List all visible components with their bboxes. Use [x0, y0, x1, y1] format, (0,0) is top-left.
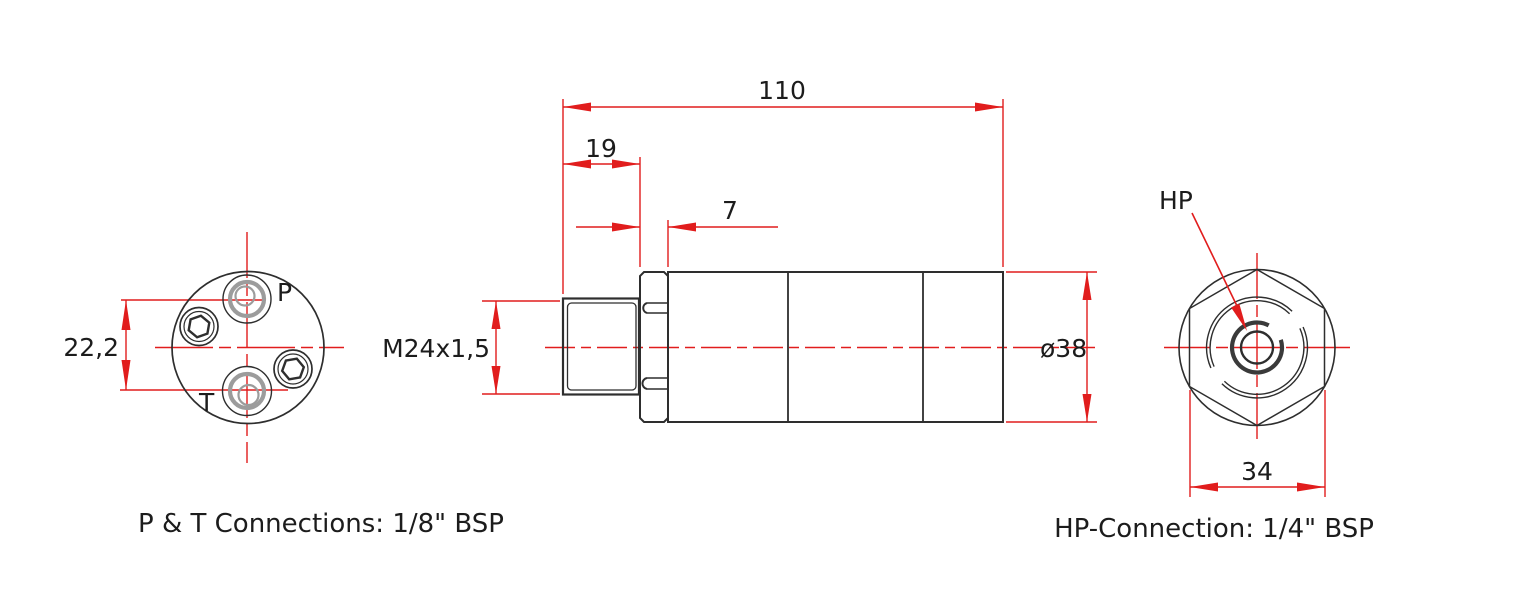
- arrowhead-down: [492, 366, 501, 394]
- hex-chamfer-arc: [643, 303, 647, 313]
- right-view-hp-end: HP 34: [1159, 186, 1351, 497]
- left-view-pt-end: 22,2 P T: [63, 232, 344, 463]
- leader-arrowhead: [1231, 304, 1247, 331]
- label-hp-port: HP: [1159, 186, 1193, 215]
- technical-drawing: 22,2 P T: [0, 0, 1536, 608]
- screw-outer-circle: [274, 350, 312, 388]
- t-port-bore-circle: [239, 385, 259, 405]
- arrowhead-up: [122, 300, 131, 330]
- p-port: [223, 275, 271, 323]
- arrowhead-left: [668, 223, 696, 232]
- drawing-svg: 22,2 P T: [0, 0, 1536, 608]
- dimension-text-body-diameter: ø38: [1040, 334, 1087, 363]
- dimension-total-length: 110: [563, 76, 1003, 294]
- screw-outer-circle: [180, 308, 218, 346]
- socket-screw-lower-right: [274, 350, 312, 388]
- dimension-text-thread-spec: M24x1,5: [382, 334, 490, 363]
- dimension-text-total-length: 110: [758, 76, 806, 105]
- p-port-bore-circle: [236, 287, 255, 306]
- arrowhead-left: [563, 103, 591, 112]
- arrowhead-down: [122, 360, 131, 390]
- arrowhead-down: [1083, 394, 1092, 422]
- caption-hp-connection: HP-Connection: 1/4" BSP: [1054, 514, 1374, 544]
- dimension-text-hex-across-flats: 34: [1241, 457, 1273, 486]
- dimension-text-port-spacing: 22,2: [63, 333, 119, 362]
- arrowhead-right: [975, 103, 1003, 112]
- label-t-port: T: [198, 388, 215, 417]
- thread-outer-outline: [563, 299, 639, 395]
- hp-leader: HP: [1159, 186, 1247, 331]
- dimension-thread-length: 19: [563, 134, 640, 267]
- screw-hex-socket: [282, 359, 304, 380]
- label-p-port: P: [277, 278, 292, 307]
- socket-screw-upper-left: [180, 308, 218, 346]
- thread-inner-outline: [568, 303, 637, 390]
- arrowhead-right: [612, 223, 640, 232]
- dimension-text-hex-length: 7: [722, 196, 738, 225]
- leader-line: [1192, 213, 1237, 306]
- arrowhead-right: [1297, 483, 1325, 492]
- dimension-hex-length: 7: [576, 196, 778, 267]
- dimension-port-spacing: 22,2: [63, 300, 130, 390]
- arrowhead-left: [1190, 483, 1218, 492]
- side-view: 110 19 7 M24x1,5: [382, 76, 1097, 422]
- threaded-stub: [563, 299, 639, 395]
- hex-chamfer-arc: [642, 378, 647, 389]
- arrowhead-up: [1083, 272, 1092, 300]
- dimension-text-thread-length: 19: [585, 134, 617, 163]
- caption-pt-connections: P & T Connections: 1/8" BSP: [138, 509, 504, 539]
- dimension-thread-spec: M24x1,5: [382, 301, 560, 394]
- arrowhead-up: [492, 301, 501, 329]
- screw-hex-socket: [189, 316, 210, 338]
